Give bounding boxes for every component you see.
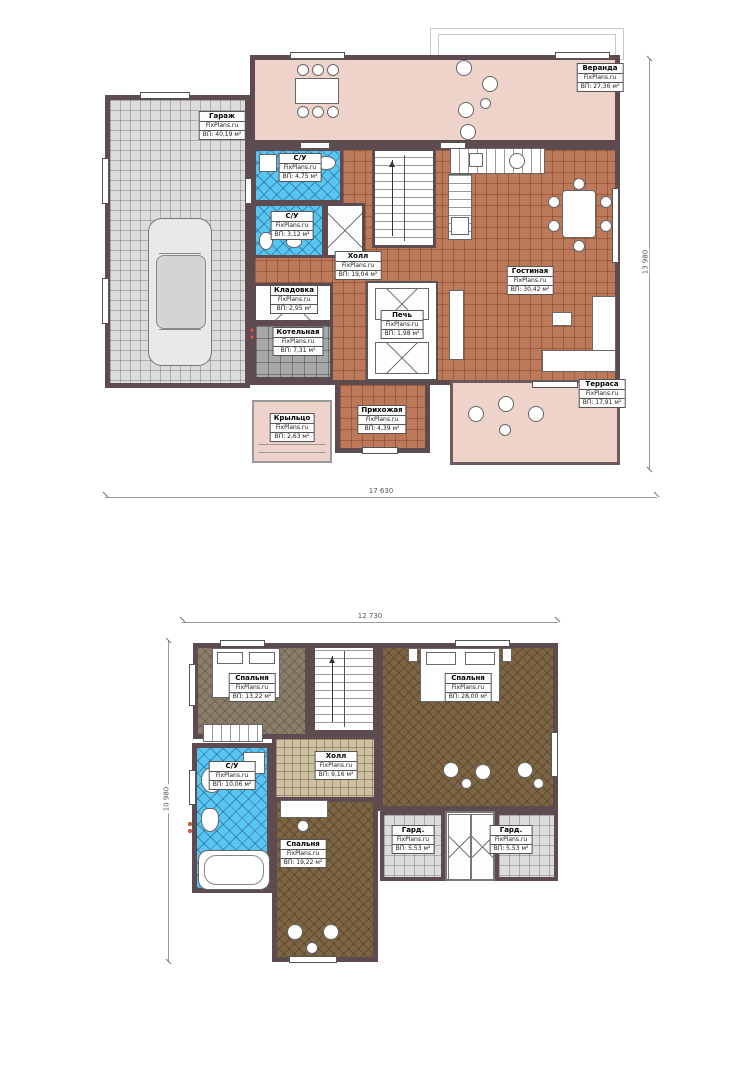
room-name: Печь (382, 311, 423, 320)
pillow-icon (217, 652, 243, 664)
armchair-icon (468, 406, 484, 422)
pillow-icon (249, 652, 275, 664)
pillow-icon (465, 652, 495, 665)
bathtub (198, 850, 270, 890)
room-label-bedroom1: Спальня FixPlans.ru ВП: 13,22 м² (230, 674, 275, 701)
room-label-wardrobe2: Гард. FixPlans.ru ВП: 5,53 м² (491, 826, 532, 853)
room-label-garage: Гараж FixPlans.ru ВП: 40,19 м² (200, 112, 245, 139)
brand-watermark: FixPlans.ru (200, 121, 245, 130)
room-label-bedroom2: Спальня FixPlans.ru ВП: 28,00 м² (446, 674, 491, 701)
nightstand-icon (408, 648, 418, 662)
window (140, 92, 190, 99)
radiator-dot (188, 822, 192, 826)
car-cabin (156, 255, 206, 329)
window (551, 732, 558, 777)
brand-watermark: FixPlans.ru (316, 761, 357, 770)
room-label-stove: Печь FixPlans.ru ВП: 1,98 м² (382, 311, 423, 338)
room-area: ВП: 40,19 м² (200, 130, 245, 139)
chair-icon (312, 106, 324, 118)
armchair-icon (456, 60, 472, 76)
chair-icon (573, 240, 585, 252)
pillow-icon (426, 652, 456, 665)
side-table-icon (461, 778, 472, 789)
chair-icon (297, 106, 309, 118)
armchair-icon (482, 76, 498, 92)
dimension-height-label: 13 980 (641, 248, 649, 277)
window (189, 664, 196, 706)
stove-hatch (375, 342, 429, 374)
toilet-icon (201, 808, 219, 832)
room-name: Кладовка (271, 286, 317, 295)
garage-door (245, 178, 252, 204)
room-name: Крыльцо (271, 414, 314, 423)
window (102, 158, 109, 204)
car-rear-window (159, 329, 201, 330)
brand-watermark: FixPlans.ru (358, 415, 405, 424)
room-area: ВП: 10,06 м² (210, 780, 255, 789)
room-area: ВП: 4,39 м² (358, 424, 405, 433)
brand-watermark: FixPlans.ru (336, 261, 381, 270)
armchair-icon (528, 406, 544, 422)
brand-watermark: FixPlans.ru (580, 389, 625, 398)
nightstand-icon (502, 648, 512, 662)
chair-icon (312, 64, 324, 76)
room-name: С/У (210, 762, 255, 771)
stairs-rail (344, 651, 345, 726)
room-name: Холл (336, 252, 381, 261)
chair-icon (327, 106, 339, 118)
room-name: Гард. (491, 826, 532, 835)
armchair-icon (287, 924, 303, 940)
stairs-floor1 (372, 148, 436, 248)
armchair-icon (517, 762, 533, 778)
chair-icon (600, 220, 612, 232)
room-area: ВП: 2,63 м² (271, 432, 314, 441)
stairs-direction-arrow (332, 656, 333, 722)
room-name: Спальня (230, 674, 275, 683)
dimension-width-label: 12 730 (356, 612, 385, 620)
armchair-icon (460, 124, 476, 140)
bathtub-basin (204, 855, 264, 885)
porch-step (258, 444, 326, 445)
brand-watermark: FixPlans.ru (272, 221, 313, 230)
boiler-dot (250, 328, 254, 332)
kitchen-sink-icon (509, 153, 525, 169)
car-windshield (159, 253, 201, 254)
washer-icon (259, 154, 277, 172)
room-label-terrace: Терраса FixPlans.ru ВП: 17,91 м² (580, 380, 625, 407)
room-name: Терраса (580, 380, 625, 389)
room-area: ВП: 13,22 м² (230, 692, 275, 701)
room-name: Гараж (200, 112, 245, 121)
armchair-icon (498, 396, 514, 412)
room-area: ВП: 4,75 м² (280, 172, 321, 181)
room-label-living: Гостиная FixPlans.ru ВП: 30,42 м² (508, 267, 553, 294)
room-label-bathroom2f: С/У FixPlans.ru ВП: 10,06 м² (210, 762, 255, 789)
brand-watermark: FixPlans.ru (274, 337, 323, 346)
veranda-door (300, 142, 330, 149)
room-area: ВП: 3,12 м² (272, 230, 313, 239)
closet-strip (203, 724, 263, 742)
room-area: ВП: 7,31 м² (274, 346, 323, 355)
side-table-icon (480, 98, 491, 109)
room-label-porch: Крыльцо FixPlans.ru ВП: 2,63 м² (271, 414, 314, 441)
armchair-icon (323, 924, 339, 940)
car (148, 218, 212, 366)
room-area: ВП: 19,04 м² (336, 270, 381, 279)
shower-cabin (325, 203, 365, 258)
wardrobe-units (445, 811, 495, 881)
room-name: Спальня (446, 674, 491, 683)
brand-watermark: FixPlans.ru (280, 163, 321, 172)
room-label-entry: Прихожая FixPlans.ru ВП: 4,39 м² (358, 406, 405, 433)
entry-door (362, 447, 398, 454)
room-area: ВП: 30,42 м² (508, 285, 553, 294)
chair-icon (600, 196, 612, 208)
room-label-wc1: С/У FixPlans.ru ВП: 4,75 м² (280, 154, 321, 181)
floor-plan-canvas: { "brand": "FixPlans.ru", "colors": { "w… (0, 0, 736, 1080)
porch-step (258, 452, 326, 453)
veranda-door (440, 142, 466, 149)
chair-icon (548, 196, 560, 208)
room-label-veranda: Веранда FixPlans.ru ВП: 27,36 м² (578, 64, 623, 91)
brand-watermark: FixPlans.ru (508, 276, 553, 285)
brand-watermark: FixPlans.ru (578, 73, 623, 82)
room-label-wc2: С/У FixPlans.ru ВП: 3,12 м² (272, 212, 313, 239)
room-label-bedroom3: Спальня FixPlans.ru ВП: 19,22 м² (281, 840, 326, 867)
radiator-dot (188, 829, 192, 833)
room-area: ВП: 5,53 м² (393, 844, 434, 853)
floor2-plan: Спальня FixPlans.ru ВП: 13,22 м² Спальня… (165, 612, 570, 977)
room-area: ВП: 2,95 м² (271, 304, 317, 313)
brand-watermark: FixPlans.ru (230, 683, 275, 692)
fridge-icon (451, 217, 469, 235)
room-area: ВП: 27,36 м² (578, 82, 623, 91)
room-area: ВП: 9,16 м² (316, 770, 357, 779)
room-name: Котельная (274, 328, 323, 337)
room-label-hall: Холл FixPlans.ru ВП: 19,04 м² (336, 252, 381, 279)
room-name: Гостиная (508, 267, 553, 276)
room-label-boiler: Котельная FixPlans.ru ВП: 7,31 м² (274, 328, 323, 355)
stairs-direction-arrow (392, 160, 393, 235)
room-name: Прихожая (358, 406, 405, 415)
tv-stand (449, 290, 464, 360)
side-table-icon (533, 778, 544, 789)
window (189, 770, 196, 805)
dimension-width-label: 17 630 (367, 487, 396, 495)
boiler-dot (250, 335, 254, 339)
brand-watermark: FixPlans.ru (271, 423, 314, 432)
stairs-rail (404, 155, 405, 242)
room-name: С/У (280, 154, 321, 163)
room-area: ВП: 17,91 м² (580, 398, 625, 407)
room-area: ВП: 28,00 м² (446, 692, 491, 701)
chair-icon (297, 820, 309, 832)
room-area: ВП: 5,53 м² (491, 844, 532, 853)
room-name: Гард. (393, 826, 434, 835)
window (612, 188, 619, 263)
room-label-hall2: Холл FixPlans.ru ВП: 9,16 м² (316, 752, 357, 779)
brand-watermark: FixPlans.ru (281, 849, 326, 858)
side-table-icon (499, 424, 511, 436)
brand-watermark: FixPlans.ru (446, 683, 491, 692)
side-table-icon (306, 942, 318, 954)
brand-watermark: FixPlans.ru (271, 295, 317, 304)
room-label-storage: Кладовка FixPlans.ru ВП: 2,95 м² (271, 286, 317, 313)
window (555, 52, 610, 59)
chair-icon (297, 64, 309, 76)
room-name: Веранда (578, 64, 623, 73)
room-name: Спальня (281, 840, 326, 849)
kitchen-counter (450, 148, 545, 174)
sofa-section (542, 350, 616, 372)
dimension-line-width (182, 622, 558, 623)
room-area: ВП: 19,22 м² (281, 858, 326, 867)
room-area: ВП: 1,98 м² (382, 329, 423, 338)
cooktop-icon (469, 153, 483, 167)
terrace-door (532, 381, 578, 388)
stairs-floor2 (310, 643, 378, 735)
brand-watermark: FixPlans.ru (393, 835, 434, 844)
window (289, 956, 337, 963)
desk (280, 800, 328, 818)
floor1-plan: Веранда FixPlans.ru ВП: 27,36 м² Гараж F… (100, 28, 660, 503)
brand-watermark: FixPlans.ru (210, 771, 255, 780)
chair-icon (327, 64, 339, 76)
room-name: Холл (316, 752, 357, 761)
window (220, 640, 265, 647)
wardrobe-unit-icon (448, 814, 471, 880)
armchair-icon (458, 102, 474, 118)
brand-watermark: FixPlans.ru (382, 320, 423, 329)
veranda-table (295, 78, 339, 104)
window (455, 640, 510, 647)
dimension-line-width (105, 497, 657, 498)
room-name: С/У (272, 212, 313, 221)
window (290, 52, 345, 59)
armchair-icon (475, 764, 491, 780)
dimension-height-label: 10 980 (162, 785, 170, 814)
chair-icon (548, 220, 560, 232)
room-label-wardrobe1: Гард. FixPlans.ru ВП: 5,53 м² (393, 826, 434, 853)
kitchen-side-counter (448, 174, 472, 240)
coffee-table (552, 312, 572, 326)
brand-watermark: FixPlans.ru (491, 835, 532, 844)
window (102, 278, 109, 324)
armchair-icon (443, 762, 459, 778)
chair-icon (573, 178, 585, 190)
dining-table (562, 190, 596, 238)
